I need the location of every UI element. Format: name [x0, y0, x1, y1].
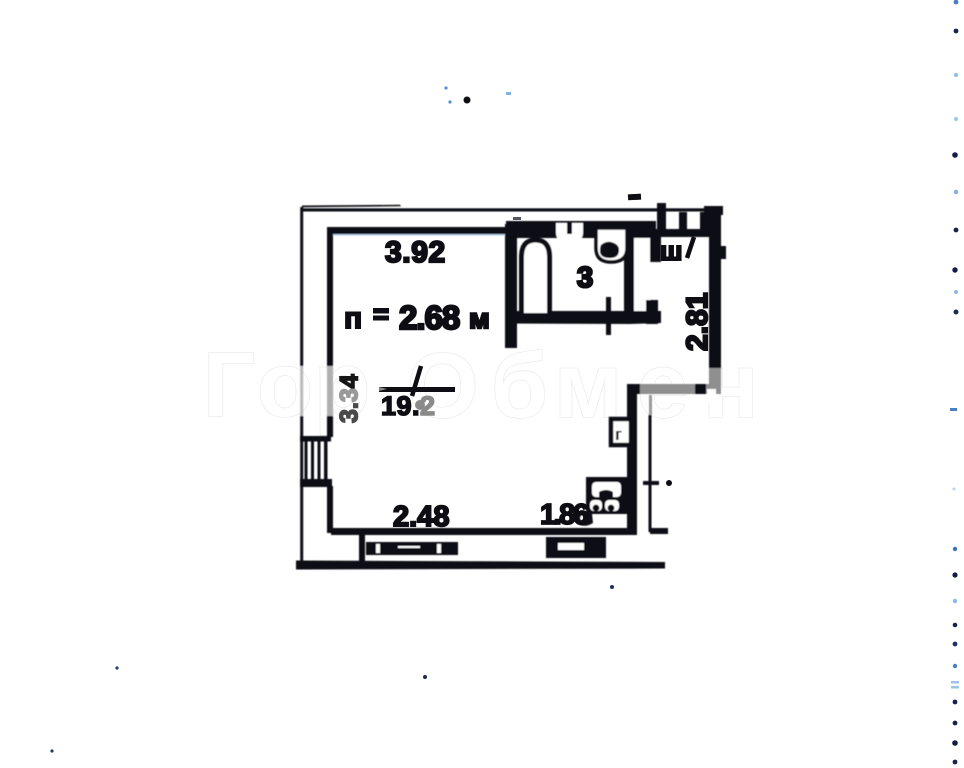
- svg-text:м: м: [469, 303, 490, 334]
- svg-text:О: О: [407, 335, 479, 437]
- svg-text:2.68: 2.68: [399, 299, 460, 336]
- svg-text:3: 3: [577, 262, 593, 294]
- svg-text:2.81: 2.81: [681, 293, 714, 351]
- svg-text:б: б: [491, 335, 548, 437]
- svg-text:г: г: [615, 425, 622, 444]
- svg-text:19.2: 19.2: [381, 391, 436, 421]
- svg-text:3.34: 3.34: [336, 374, 364, 423]
- svg-text:о: о: [257, 334, 313, 436]
- svg-text:ш: ш: [660, 236, 683, 266]
- svg-text:2.48: 2.48: [393, 501, 449, 533]
- svg-text:Г: Г: [203, 334, 255, 436]
- svg-text:п: п: [344, 302, 362, 335]
- svg-text:1.86: 1.86: [540, 499, 589, 531]
- svg-text:3.92: 3.92: [385, 236, 446, 269]
